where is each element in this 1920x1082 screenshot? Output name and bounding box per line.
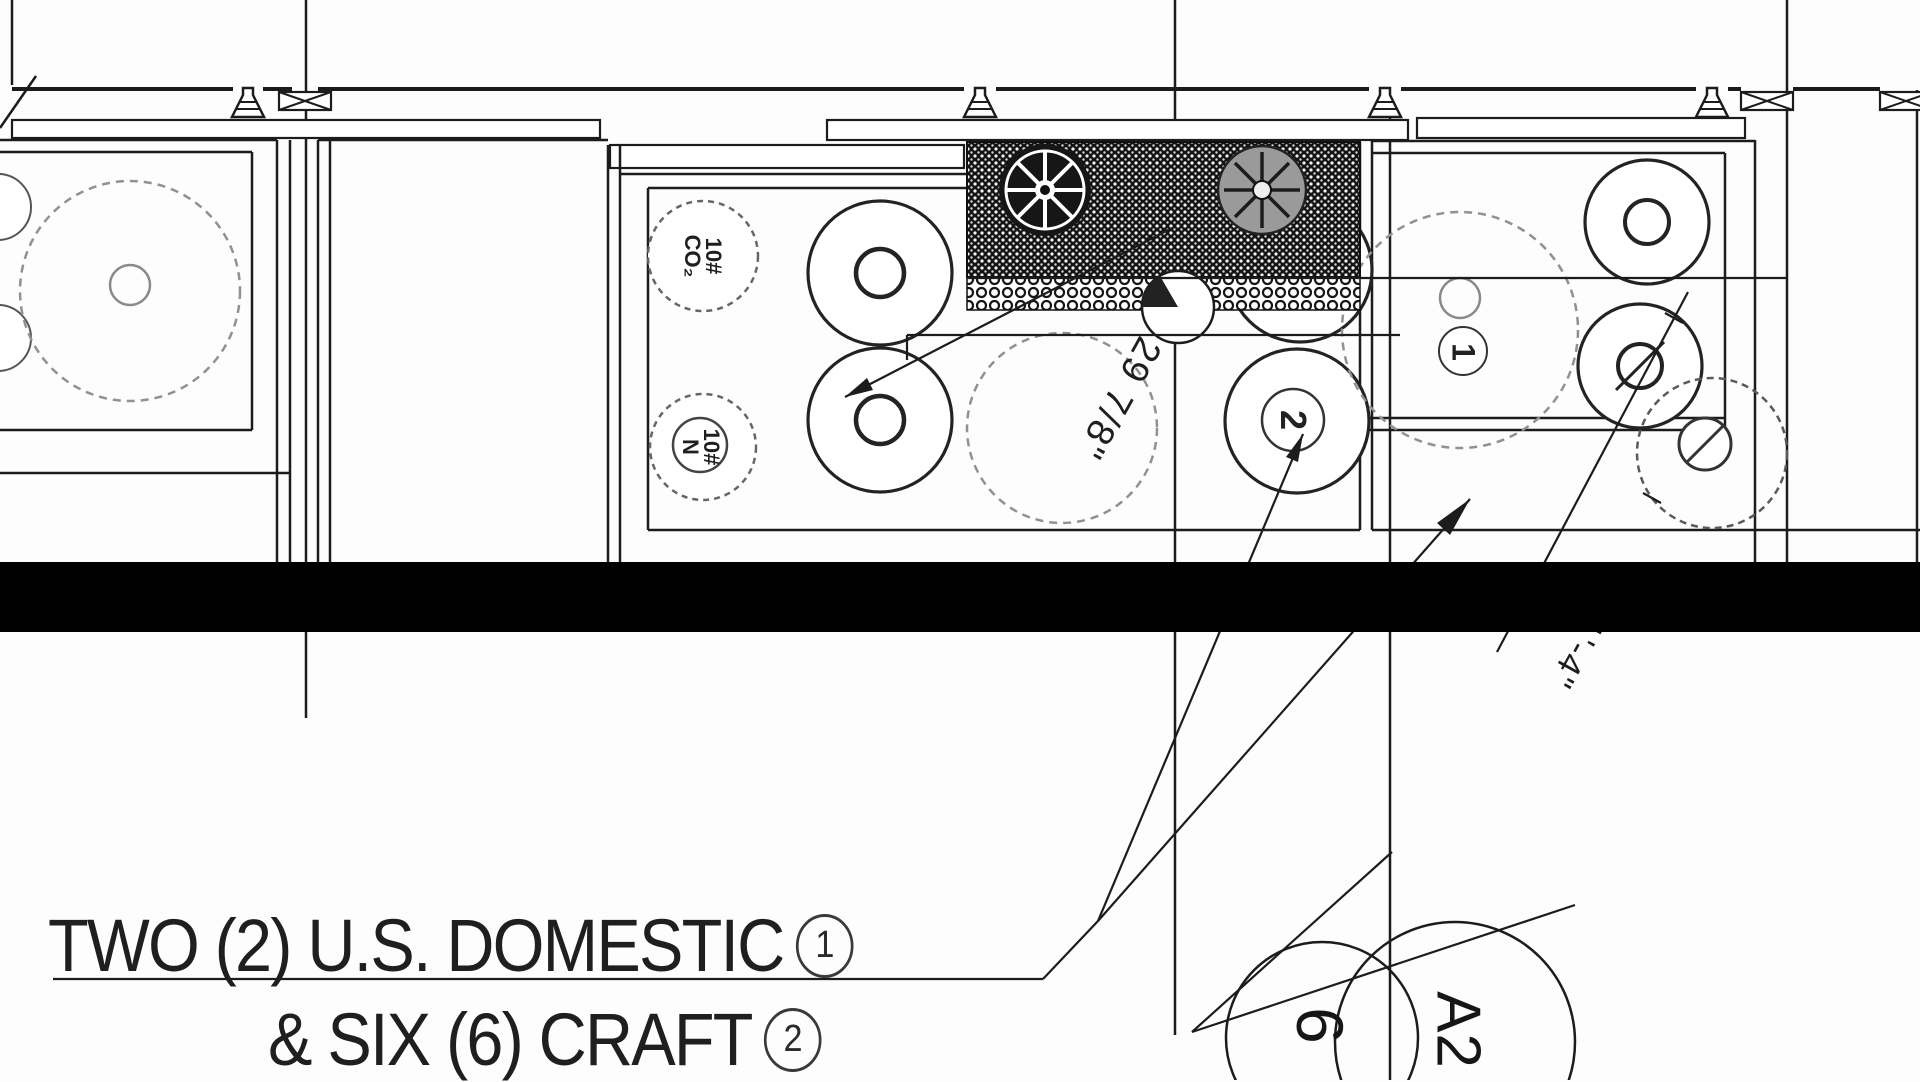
detail-callout xyxy=(1192,852,1575,1080)
callout-sheet-number: A2 xyxy=(1423,991,1494,1069)
callout-detail-number: 6 xyxy=(1282,1007,1358,1045)
circled-tag-2-icon: 2 xyxy=(764,1008,822,1072)
fan-wheel-right xyxy=(1218,146,1306,234)
circled-tag-1-icon: 1 xyxy=(796,914,854,978)
fan-wheel-left xyxy=(999,144,1091,236)
plan-keg-tag-1: 1 xyxy=(1445,343,1482,361)
wall-fixtures xyxy=(232,88,1920,117)
floor-plan-stage: 1'-4" xyxy=(0,0,1920,1080)
counter-strips xyxy=(12,118,1745,168)
nitrogen-tank-label: 10# N xyxy=(680,429,722,466)
note-craft-kegs: & SIX (6) CRAFT 2 xyxy=(268,997,822,1082)
co2-tank-label: 10# CO₂ xyxy=(682,235,724,278)
note-domestic-kegs: TWO (2) U.S. DOMESTIC 1 xyxy=(48,903,854,988)
wall-section-band xyxy=(0,562,1920,632)
note-line-1: TWO (2) U.S. DOMESTIC xyxy=(48,903,783,988)
plan-keg-tag-2: 2 xyxy=(1272,410,1314,430)
note-line-2: & SIX (6) CRAFT xyxy=(268,997,752,1082)
